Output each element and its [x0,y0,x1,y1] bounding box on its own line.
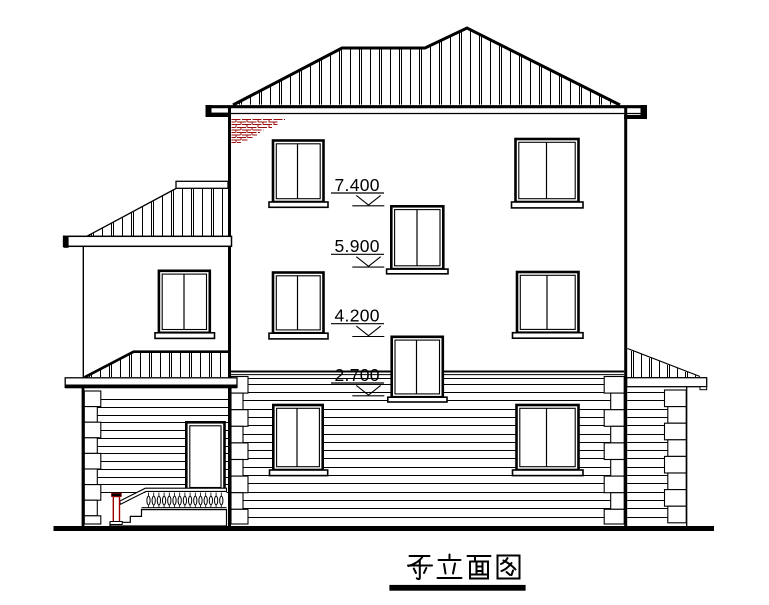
svg-text:4.200: 4.200 [335,306,380,326]
svg-text:5.900: 5.900 [335,236,380,256]
svg-text:7.400: 7.400 [335,175,380,195]
svg-text:2.700: 2.700 [335,365,380,385]
